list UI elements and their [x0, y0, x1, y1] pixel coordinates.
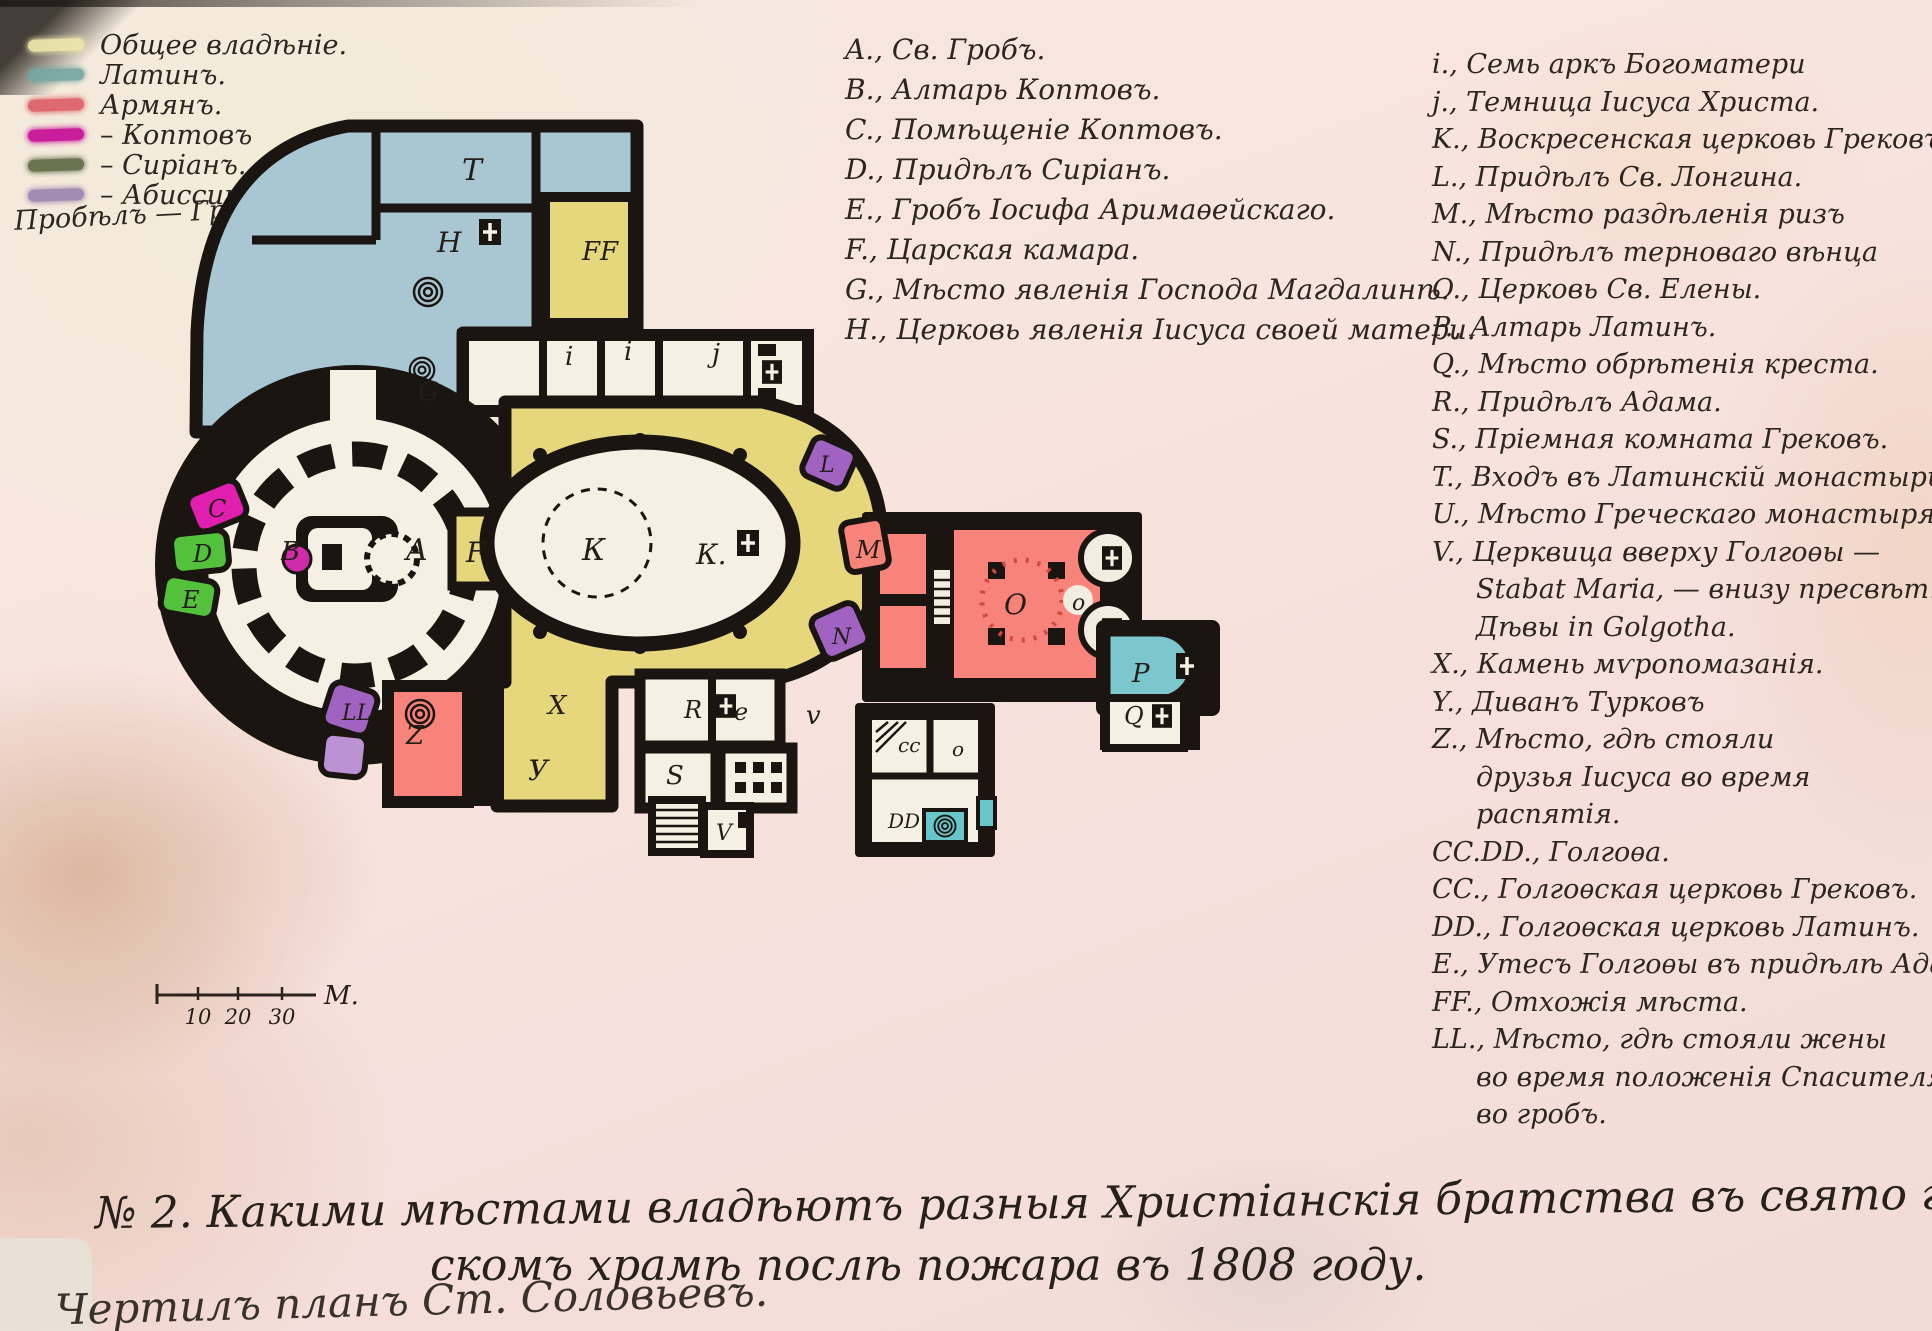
key-list-entry: A., Св. Гробъ. — [845, 30, 1425, 70]
legend-color-swatch — [28, 98, 84, 112]
key-list-entry: P., Алтарь Латинъ. — [1432, 309, 1932, 347]
plan-room-label: o — [952, 737, 964, 761]
plan-room-label: cc — [898, 733, 920, 757]
key-list-entry: V., Церквица вверху Голгоѳы — — [1432, 534, 1932, 572]
plan-room-label: FF — [581, 237, 619, 267]
scale-bar — [157, 984, 316, 1004]
plan-room-label: Q — [1124, 702, 1144, 730]
key-list-entry: K., Воскресенская церковь Грековъ. — [1432, 121, 1932, 159]
key-list-entry: N., Придѣлъ терноваго вѣнца — [1432, 234, 1932, 272]
altar-cross-icon — [762, 360, 782, 384]
plan-room-label: T — [462, 153, 484, 188]
legend-color-swatch — [28, 38, 84, 52]
legend-color-swatch — [28, 68, 84, 82]
plan-room-label: L — [819, 453, 835, 478]
plan-room-label: К. — [695, 538, 727, 571]
plan-room-label: X — [546, 691, 568, 721]
plan-room-label: o — [1072, 591, 1085, 616]
entrance-steps — [652, 800, 702, 852]
altar-cross-icon — [737, 530, 759, 556]
key-list-entry: распятія. — [1432, 796, 1932, 834]
legend-item: Латинъ. — [28, 60, 347, 90]
key-list-entry: во гробъ. — [1432, 1096, 1932, 1134]
key-list-entry: i., Семь аркъ Богоматери — [1432, 46, 1932, 84]
plan-room-label: Z — [405, 721, 425, 751]
key-list-entry: j., Темница Іисуса Христа. — [1432, 84, 1932, 122]
plan-room-label: R — [683, 696, 702, 724]
key-list-entry: FF., Отхожія мѣста. — [1432, 984, 1932, 1022]
plan-room-label: N — [831, 625, 852, 650]
key-list-entry: O., Церковь Св. Елены. — [1432, 271, 1932, 309]
key-list-entry: CC.DD., Голгоѳа. — [1432, 834, 1932, 872]
altar-cross-icon — [479, 219, 501, 245]
scale-tick-label: 10 — [185, 1005, 212, 1025]
plan-room-label: DD — [887, 809, 920, 833]
altar-cross-icon — [1102, 546, 1122, 570]
floor-plan: 102030М. THFFGiijBAFКК.CDELLLМNXУZReSVvО… — [140, 95, 1220, 1025]
room-Q-cross-finding — [1106, 698, 1184, 748]
plan-room-label: М — [855, 536, 882, 564]
plan-room-label: У — [528, 754, 550, 787]
scale-tick-label: 30 — [269, 1005, 296, 1025]
legend-color-swatch — [28, 128, 84, 142]
plan-room-label: C — [208, 495, 226, 523]
manuscript-page: Общее владѣніе.Латинъ.Армянъ.– Коптовъ– … — [0, 0, 1932, 1331]
plan-room-label: e — [734, 698, 748, 726]
key-list-entry: R., Придѣлъ Адама. — [1432, 384, 1932, 422]
legend-item: Общее владѣніе. — [28, 30, 347, 60]
key-list-entry: друзья Іисуса во время — [1432, 759, 1932, 797]
plan-room-label: F — [465, 536, 487, 569]
plan-room-label: v — [806, 701, 821, 731]
plan-room-label: i — [624, 337, 632, 367]
altar-cross-icon — [1176, 653, 1198, 679]
legend-color-swatch — [28, 158, 84, 172]
plan-room-label: E — [181, 586, 200, 614]
plan-room-label: D — [192, 540, 212, 568]
plan-room-label: О — [1004, 588, 1027, 621]
key-list-entry: DD., Голгоѳская церковь Латинъ. — [1432, 909, 1932, 947]
plan-room-label: S — [666, 761, 684, 791]
legend-color-swatch — [28, 188, 84, 202]
legend-item-label: Общее владѣніе. — [100, 30, 347, 61]
edicule-holy-sepulchre — [283, 516, 417, 602]
plan-room-label: LL — [341, 701, 371, 726]
chapel-P-Q — [1096, 620, 1220, 750]
key-list-entry: S., Пріемная комната Грековъ. — [1432, 421, 1932, 459]
plan-room-label: G — [418, 377, 439, 407]
plan-room-label: V — [716, 821, 734, 846]
plan-room-label: H — [436, 226, 462, 259]
legend-item-label: Латинъ. — [100, 60, 226, 91]
key-list-entry: X., Камень мѵропомазанія. — [1432, 646, 1932, 684]
plan-room-label: i — [565, 342, 573, 372]
key-list-entry: T., Входъ въ Латинскій монастырь — [1432, 459, 1932, 497]
key-list-entry: E., Утесъ Голгоѳы въ придѣлѣ Адама. — [1432, 946, 1932, 984]
key-list-entry: CC., Голгоѳская церковь Грековъ. — [1432, 871, 1932, 909]
scale-bar-labels: 102030М. — [185, 981, 359, 1025]
key-list-entry: Z., Мѣсто, гдѣ стояли — [1432, 721, 1932, 759]
golgotha-building — [855, 703, 995, 857]
plan-room-label: P — [1131, 659, 1150, 689]
key-list-entry: Y., Диванъ Турковъ — [1432, 684, 1932, 722]
scale-tick-label: 20 — [224, 1005, 252, 1025]
key-list-entry: Stabat Maria, — внизу пресвѣт. — [1432, 571, 1932, 609]
caption-line-1: № 2. Какими мѣстами владѣютъ разныя Хрис… — [95, 1168, 1932, 1239]
key-list-entry: U., Мѣсто Греческаго монастыря — [1432, 496, 1932, 534]
plan-room-label: A — [403, 533, 428, 568]
altar-cross-icon — [1152, 704, 1172, 728]
key-list-entry: M., Мѣсто раздѣленія ризъ — [1432, 196, 1932, 234]
key-list-entry: Дѣвы in Golgotha. — [1432, 609, 1932, 647]
key-list-right: i., Семь аркъ Богоматериj., Темница Іису… — [1432, 46, 1932, 1134]
key-list-entry: Q., Мѣсто обрѣтенія креста. — [1432, 346, 1932, 384]
room-LL2-abyssinian — [320, 732, 368, 778]
altar-cross-icon — [716, 694, 736, 718]
key-list-entry: во время положенія Спасителя — [1432, 1059, 1932, 1097]
plan-room-label: К — [581, 533, 606, 568]
page-edge-shadow — [0, 0, 700, 7]
draughtsman-signature: Чертилъ планъ Ст. Соловьевъ. — [54, 1267, 768, 1331]
key-list-entry: LL., Мѣсто, гдѣ стояли жены — [1432, 1021, 1932, 1059]
scale-unit-label: М. — [323, 981, 359, 1011]
key-list-entry: L., Придѣлъ Св. Лонгина. — [1432, 159, 1932, 197]
plan-room-label: B — [280, 537, 300, 567]
